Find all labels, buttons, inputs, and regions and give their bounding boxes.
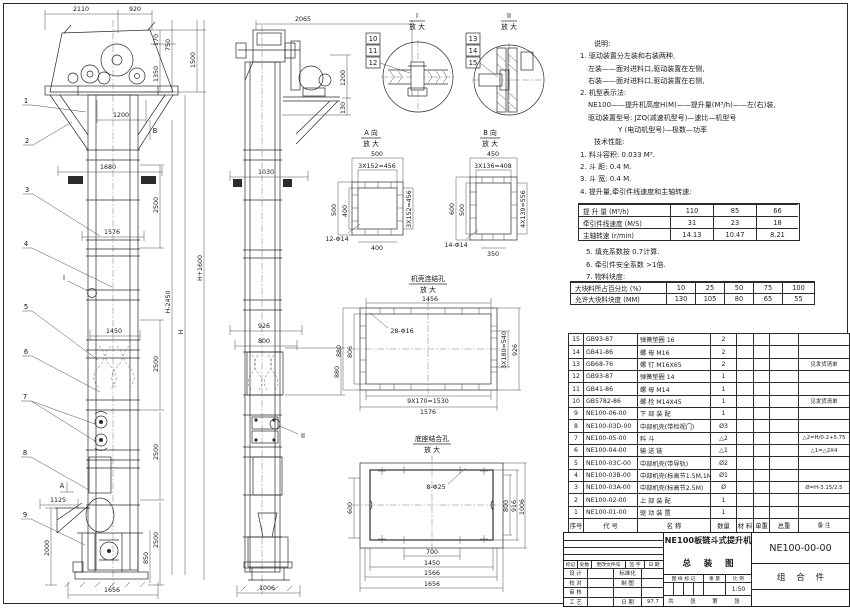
part-remark [799, 346, 849, 358]
lump-value: 130 [667, 293, 696, 304]
dim-926: 926 [258, 323, 270, 330]
dim-base-holes: 8-Φ25 [426, 484, 445, 491]
balloon-1: 1 [24, 97, 28, 105]
side-elevation-dimensions: 2065 1200 130 1030 926 800 880 1006 II [230, 16, 412, 597]
part-code: GB93-87 [584, 334, 638, 346]
part-total-weight [770, 408, 799, 420]
dim-a-holes: 12-Φ14 [325, 236, 348, 243]
parts-row: 13 GB68-76 螺 钉 M16X65 2 见发货清单 [569, 359, 849, 371]
dim-2000: 2000 [44, 540, 51, 556]
part-material [737, 445, 754, 457]
dim-c-1576: 1576 [420, 409, 436, 416]
casing-view-mag: 放 大 [420, 285, 436, 294]
part-no: 7 [569, 433, 584, 445]
part-remark: △1=△2X4 [799, 445, 849, 457]
part-unit-weight [754, 408, 770, 420]
parts-row: 15 GB93-87 弹簧垫圈 16 2 [569, 334, 849, 346]
spec-value: 23 [714, 216, 757, 228]
part-qty: Ø3 [711, 420, 737, 432]
part-qty: 1 [711, 396, 737, 408]
part-material [737, 396, 754, 408]
dim-base-1450: 1450 [424, 560, 440, 567]
engineering-drawing-sheet: 2110 920 170 750 1350 1500 H+1600 H H-24… [0, 0, 850, 609]
balloon-12: 12 [369, 59, 378, 67]
note-line: 驱动装置型号: JZQ(减速机型号)—速比—机型号 [572, 112, 848, 124]
part-no: 4 [569, 470, 584, 482]
part-code: GB93-87 [584, 371, 638, 383]
part-name: 弹簧垫圈 16 [638, 334, 711, 346]
balloon-11: 11 [369, 47, 378, 55]
lump-size-table: 大块料所占百分比 (%) 10 25 50 75 100 允许大块料块度 (MM… [570, 281, 815, 305]
part-total-weight [770, 507, 799, 519]
dim-1656: 1656 [104, 587, 120, 594]
balloon-5: 5 [24, 303, 28, 311]
detail-view-ii: II 放 大 13 14 15 [466, 12, 546, 117]
part-total-weight [770, 359, 799, 371]
dim-850: 850 [143, 552, 150, 564]
dim-base-1006: 1006 [519, 499, 526, 515]
part-name: 螺 钉 M16X65 [638, 359, 711, 371]
dim-c-926: 926 [512, 344, 519, 356]
lump-value: 80 [725, 293, 754, 304]
title-block-right: NE100-00-00 组 合 件 [752, 533, 849, 606]
part-total-weight [770, 383, 799, 395]
balloon-15: 15 [469, 59, 478, 67]
section-view-b: B 向 放 大 450 3X136=408 600 500 4X139=556 … [444, 128, 527, 258]
balloon-2: 2 [25, 137, 29, 145]
part-code: NE100-03A-00 [584, 482, 638, 494]
part-name: 中部机壳(带导轨) [638, 457, 711, 469]
sheet-count-row: 共 张 第 张 [664, 595, 752, 606]
part-remark [799, 470, 849, 482]
spec-value: 85 [714, 204, 757, 216]
dim-1500: 1500 [190, 52, 197, 68]
part-remark: △2=H/0.2+5.75 [799, 433, 849, 445]
dim-c-1456: 1456 [422, 296, 438, 303]
dim-base-800: 800 [503, 500, 510, 512]
drawing-number: NE100-00-00 [752, 533, 849, 564]
part-material [737, 420, 754, 432]
part-qty: △1 [711, 445, 737, 457]
tech-line: 5. 填充系数按 0.7计算. [586, 246, 666, 259]
parts-row: 10 GB5782-86 螺 栓 M14X45 1 见发货清单 [569, 396, 849, 408]
part-material [737, 507, 754, 519]
balloon-4: 4 [24, 240, 28, 248]
balloon-8: 8 [23, 449, 27, 457]
dim-a-400l: 400 [342, 205, 349, 217]
part-code: NE100-03B-00 [584, 470, 638, 482]
dim-base-1656: 1656 [424, 581, 440, 588]
part-material [737, 334, 754, 346]
part-no: 8 [569, 420, 584, 432]
col-remark: 备 注 [799, 519, 849, 531]
part-qty: 1 [711, 494, 737, 506]
dim-a-456t: 3X152=456 [358, 163, 396, 170]
part-code: NE100-01-00 [584, 507, 638, 519]
tech-line: 4. 提升量,牵引件线速度和主轴转速: [572, 186, 848, 198]
sig-row-design: 设 计 标准化 [564, 568, 664, 578]
part-no: 5 [569, 457, 584, 469]
part-qty: 1 [711, 383, 737, 395]
spec-value: 66 [757, 204, 798, 216]
balloon-7: 7 [23, 393, 27, 401]
marker-i: I [63, 274, 65, 282]
part-no: 1 [569, 507, 584, 519]
part-name: 中部机壳(带检视门) [638, 420, 711, 432]
base-view-mag: 放 大 [424, 445, 440, 454]
part-no: 9 [569, 408, 584, 420]
lump-label: 允许大块料块度 (MM) [571, 293, 667, 304]
dim-2500: 2500 [153, 532, 160, 548]
marker-b: B [153, 127, 158, 135]
dim-a-456r: 3X152=456 [406, 190, 413, 228]
part-qty: 2 [711, 334, 737, 346]
part-unit-weight [754, 433, 770, 445]
parts-row: 14 GB41-86 螺 母 M16 2 [569, 346, 849, 358]
note-line: 1. 驱动装置分左装和右装两种, [572, 50, 848, 62]
col-seq: 序号 [569, 519, 584, 531]
lump-label: 大块料所占百分比 (%) [571, 282, 667, 293]
part-material [737, 408, 754, 420]
part-qty: 1 [711, 408, 737, 420]
spec-row: 牵引件线速度 (M/S) 31 23 18 [579, 216, 799, 228]
part-unit-weight [754, 457, 770, 469]
parts-row: 9 NE100-06-00 下 部 装 配 1 [569, 408, 849, 420]
part-no: 6 [569, 445, 584, 457]
casing-view-title: 机壳连结孔 [411, 274, 445, 283]
part-no: 11 [569, 383, 584, 395]
part-total-weight [770, 470, 799, 482]
parts-rows: 15 GB93-87 弹簧垫圈 16 2 14 GB41-86 螺 母 M16 … [569, 334, 849, 519]
section-view-a: A 向 放 大 500 3X152=456 500 400 3X152=456 … [325, 128, 413, 252]
spec-row: 提 升 量 (M³/h) 110 85 66 [579, 204, 799, 216]
spec-label: 主轴转速 (r/min) [579, 228, 671, 240]
detail-ii-label: II [507, 12, 511, 20]
dim-b-556: 4X139=556 [520, 190, 527, 228]
rev-mark: 标记 [564, 561, 578, 568]
dim-base-600: 600 [347, 502, 354, 514]
part-material [737, 359, 754, 371]
dim-1350: 1350 [153, 66, 160, 82]
dim-1200-side: 1200 [340, 70, 347, 86]
part-material [737, 371, 754, 383]
part-remark [799, 371, 849, 383]
part-name: 中部机壳(标高节1.5M,1M) [638, 470, 711, 482]
lump-value: 25 [696, 282, 725, 293]
dim-2500: 2500 [153, 444, 160, 460]
part-remark [799, 494, 849, 506]
part-name: 中部机壳(标高节2.5M) [638, 482, 711, 494]
part-code: GB41-86 [584, 346, 638, 358]
dim-b-350: 350 [487, 251, 499, 258]
parts-row: 3 NE100-03A-00 中部机壳(标高节2.5M) Ø Ø=H-3.15/… [569, 482, 849, 494]
part-material [737, 433, 754, 445]
note-line: 2. 机型表示法: [572, 87, 848, 99]
dim-H: H [178, 329, 185, 334]
part-code: NE100-06-00 [584, 408, 638, 420]
dim-1200: 1200 [113, 112, 129, 119]
dim-base-700: 700 [426, 549, 438, 556]
dim-1006: 1006 [259, 585, 275, 592]
part-code: NE100-04-00 [584, 445, 638, 457]
part-total-weight [770, 482, 799, 494]
part-remark: Ø=H-3.15/2.5 [799, 482, 849, 494]
dim-b-600: 600 [449, 203, 456, 215]
note-line: 左装——面对进料口,驱动装置在左侧, [572, 63, 848, 75]
title-block-revisions: 标记 处数 更改文件号 签 字 日 期 设 计 标准化 校 对 制 图 审 核 … [564, 533, 664, 606]
dim-c-holes: 28-Φ16 [390, 328, 413, 335]
note-line: Y (电动机型号)—极数—功率 [572, 124, 848, 136]
notes-heading: 说明: [572, 38, 848, 50]
dim-b-408: 3X136=408 [474, 163, 512, 170]
part-remark [799, 408, 849, 420]
part-code: GB41-86 [584, 383, 638, 395]
sig-row-check: 校 对 制 图 [564, 578, 664, 588]
dim-1450: 1450 [106, 328, 122, 335]
tech-line: 1. 料斗容积: 0.033 M³. [572, 149, 848, 161]
rev-doc-no: 更改文件号 [592, 561, 626, 568]
dim-c-806: 806 [347, 346, 354, 358]
col-qty: 数量 [711, 519, 737, 531]
col-material: 材 料 [737, 519, 754, 531]
balloon-14: 14 [469, 47, 478, 55]
part-qty: 1 [711, 371, 737, 383]
part-code: NE100-03D-00 [584, 420, 638, 432]
part-name: 弹簧垫圈 14 [638, 371, 711, 383]
detail-ii-mag: 放 大 [501, 22, 517, 31]
lump-value: 100 [783, 282, 814, 293]
lump-value: 10 [667, 282, 696, 293]
stamp-header: 图 样 标 记 重 量 比 例 [664, 574, 752, 582]
tech-line: 3. 斗 宽: 0.4 M. [572, 173, 848, 185]
part-name: 螺 栓 M14X45 [638, 396, 711, 408]
lump-value: 105 [696, 293, 725, 304]
note-line: 右装——面对进料口,驱动装置在右侧, [572, 75, 848, 87]
part-qty: Ø2 [711, 457, 737, 469]
tech-line: 6. 牵引件安全系数 >1倍. [586, 259, 666, 272]
part-unit-weight [754, 507, 770, 519]
detail-view-i: I 放 大 10 11 12 [366, 12, 455, 114]
part-unit-weight [754, 359, 770, 371]
notes-block: 说明: 1. 驱动装置分左装和右装两种, 左装——面对进料口,驱动装置在左侧, … [572, 38, 848, 198]
part-name: 螺 母 M14 [638, 383, 711, 395]
spec-value: 10.47 [714, 228, 757, 240]
front-elevation-linework [45, 20, 178, 590]
spec-value: 8.21 [757, 228, 798, 240]
part-no: 14 [569, 346, 584, 358]
marker-a: A [60, 482, 65, 490]
dim-170: 170 [153, 34, 160, 46]
part-unit-weight [754, 470, 770, 482]
part-code: GB68-76 [584, 359, 638, 371]
part-total-weight [770, 371, 799, 383]
dim-b-450: 450 [487, 151, 499, 158]
view-a-mag: 放 大 [363, 139, 379, 148]
dim-750: 750 [165, 39, 172, 51]
dim-c-1530: 9X170=1530 [407, 398, 449, 405]
dim-1576: 1576 [104, 229, 120, 236]
technical-drawing: 2110 920 170 750 1350 1500 H+1600 H H-24… [0, 0, 563, 609]
part-type: 组 合 件 [752, 564, 849, 590]
front-elevation-balloons: 1 2 3 4 5 6 7 8 9 [21, 97, 112, 545]
part-material [737, 457, 754, 469]
col-code: 代 号 [584, 519, 638, 531]
dim-2065: 2065 [295, 16, 311, 23]
part-material [737, 383, 754, 395]
part-qty: Ø1 [711, 470, 737, 482]
part-no: 10 [569, 396, 584, 408]
view-b-label: B 向 [483, 128, 497, 137]
part-remark [799, 507, 849, 519]
lump-value: 50 [725, 282, 754, 293]
dim-800: 800 [258, 338, 270, 345]
part-unit-weight [754, 494, 770, 506]
parts-row: 7 NE100-05-00 料 斗 △2 △2=H/0.2+5.75 [569, 433, 849, 445]
part-name: 螺 母 M16 [638, 346, 711, 358]
dim-H1600: H+1600 [197, 255, 204, 281]
spec-value: 31 [671, 216, 714, 228]
dim-2500: 2500 [153, 197, 160, 213]
view-a-label: A 向 [364, 128, 378, 137]
title-block: 标记 处数 更改文件号 签 字 日 期 设 计 标准化 校 对 制 图 审 核 … [563, 532, 850, 607]
balloon-6: 6 [24, 348, 28, 356]
part-qty: Ø [711, 482, 737, 494]
dim-2110: 2110 [73, 6, 89, 13]
balloon-3: 3 [25, 186, 29, 194]
part-total-weight [770, 346, 799, 358]
part-no: 2 [569, 494, 584, 506]
part-unit-weight [754, 371, 770, 383]
part-remark: 见发货清单 [799, 359, 849, 371]
dim-a-400b: 400 [371, 245, 383, 252]
rev-count: 处数 [578, 561, 592, 568]
part-qty: 2 [711, 346, 737, 358]
lump-row: 大块料所占百分比 (%) 10 25 50 75 100 [571, 282, 814, 293]
parts-row: 12 GB93-87 弹簧垫圈 14 1 [569, 371, 849, 383]
dim-b-500: 500 [459, 204, 466, 216]
balloon-9: 9 [23, 511, 27, 519]
dim-c-540: 3X180=540 [501, 331, 508, 369]
parts-row: 11 GB41-86 螺 母 M14 1 [569, 383, 849, 395]
part-total-weight [770, 457, 799, 469]
dim-c-880: 880 [336, 345, 343, 357]
part-name: 输 送 链 [638, 445, 711, 457]
note-line: NE100——提升机高度H(M)——提升量(M³/h)——左(右)装, [572, 99, 848, 111]
part-total-weight [770, 420, 799, 432]
parts-row: 5 NE100-03C-00 中部机壳(带导轨) Ø2 [569, 457, 849, 469]
part-name: 上 部 装 配 [638, 494, 711, 506]
dim-H2450: H-2450 [165, 290, 172, 313]
part-remark [799, 334, 849, 346]
spec-value: 14.13 [671, 228, 714, 240]
lump-value: 55 [783, 293, 814, 304]
part-name: 下 部 装 配 [638, 408, 711, 420]
part-no: 15 [569, 334, 584, 346]
drawing-title: NE100板链斗式提升机 [664, 535, 752, 545]
part-remark [799, 457, 849, 469]
dim-1680: 1680 [100, 164, 116, 171]
spec-value: 110 [671, 204, 714, 216]
part-remark [799, 420, 849, 432]
date-value: 97.7 [642, 598, 664, 607]
tech-line: 2. 斗 距: 0.4 M. [572, 161, 848, 173]
parts-header-row: 序号 代 号 名 称 数量 材 料 单重 总重 备 注 [569, 519, 849, 531]
lump-value: 65 [754, 293, 783, 304]
title-block-middle: NE100板链斗式提升机 总 装 图 图 样 标 记 重 量 比 例 1:50 … [664, 533, 752, 606]
dim-880: 880 [334, 366, 341, 378]
part-qty: 2 [711, 359, 737, 371]
part-code: GB5782-86 [584, 396, 638, 408]
dim-130: 130 [340, 102, 347, 114]
part-material [737, 346, 754, 358]
part-no: 12 [569, 371, 584, 383]
stamp-values: 1:50 [664, 582, 752, 595]
part-no: 13 [569, 359, 584, 371]
dim-a-500: 500 [371, 151, 383, 158]
scale-value: 1:50 [726, 583, 752, 595]
revision-header: 标记 处数 更改文件号 签 字 日 期 [564, 560, 664, 568]
spec-label: 提 升 量 (M³/h) [579, 204, 671, 216]
part-total-weight [770, 494, 799, 506]
part-unit-weight [754, 346, 770, 358]
part-total-weight [770, 433, 799, 445]
spec-row: 主轴转速 (r/min) 14.13 10.47 8.21 [579, 228, 799, 240]
spec-value: 18 [757, 216, 798, 228]
parts-row: 8 NE100-03D-00 中部机壳(带检视门) Ø3 [569, 420, 849, 432]
part-remark [799, 383, 849, 395]
detail-i-label: I [416, 12, 418, 20]
parts-row: 6 NE100-04-00 输 送 链 △1 △1=△2X4 [569, 445, 849, 457]
balloon-13: 13 [469, 35, 478, 43]
part-material [737, 494, 754, 506]
parts-row: 2 NE100-02-00 上 部 装 配 1 [569, 494, 849, 506]
part-code: NE100-03C-00 [584, 457, 638, 469]
dim-2500: 2500 [153, 356, 160, 372]
view-b-mag: 放 大 [482, 139, 498, 148]
tech-heading: 技术性能: [572, 136, 848, 148]
dim-base-916: 916 [511, 500, 518, 512]
dim-1125: 1125 [50, 497, 66, 504]
part-unit-weight [754, 396, 770, 408]
lump-value: 75 [754, 282, 783, 293]
detail-i-mag: 放 大 [409, 22, 425, 31]
col-unit-weight: 单重 [754, 519, 770, 531]
col-name: 名 称 [638, 519, 711, 531]
part-qty: 1 [711, 507, 737, 519]
balloon-10: 10 [369, 35, 378, 43]
rev-date: 日 期 [645, 561, 664, 568]
part-name: 驱 动 装 置 [638, 507, 711, 519]
parts-row: 4 NE100-03B-00 中部机壳(标高节1.5M,1M) Ø1 [569, 470, 849, 482]
part-material [737, 482, 754, 494]
part-total-weight [770, 445, 799, 457]
casing-holes-view: 机壳连结孔 放 大 1456 28-Φ16 880 806 3X180=540 … [336, 274, 521, 416]
part-material [737, 470, 754, 482]
sig-row-process: 工 艺 日 期 97.7 [564, 597, 664, 607]
sig-row-audit: 审 核 [564, 587, 664, 597]
drawing-subtitle: 总 装 图 [664, 557, 752, 569]
base-holes-view: 底座结合孔 放 大 8-Φ25 600 800 916 1006 700 145… [347, 434, 527, 592]
part-unit-weight [754, 334, 770, 346]
part-qty: △2 [711, 433, 737, 445]
dim-1030: 1030 [258, 169, 274, 176]
marker-ii: II [301, 432, 305, 440]
part-remark: 见发货清单 [799, 396, 849, 408]
parts-list: 15 GB93-87 弹簧垫圈 16 2 14 GB41-86 螺 母 M16 … [568, 333, 850, 533]
dim-base-1566: 1566 [424, 570, 440, 577]
part-unit-weight [754, 383, 770, 395]
base-view-title: 底座结合孔 [415, 434, 449, 443]
